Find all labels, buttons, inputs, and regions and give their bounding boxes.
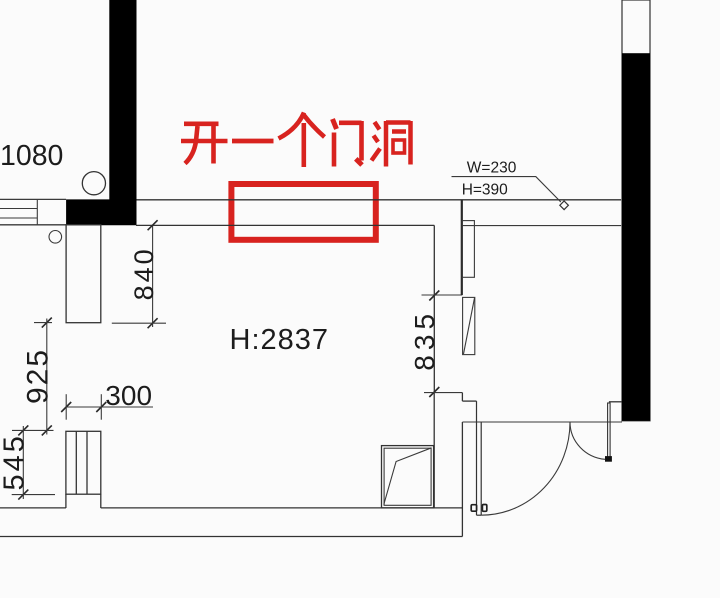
svg-text:545: 545 bbox=[0, 433, 30, 490]
svg-text:835: 835 bbox=[409, 309, 440, 371]
svg-text:H=390: H=390 bbox=[462, 182, 508, 199]
svg-text:W=230: W=230 bbox=[467, 160, 517, 177]
svg-text:840: 840 bbox=[129, 246, 159, 300]
svg-text:300: 300 bbox=[105, 380, 152, 411]
svg-text:H:2837: H:2837 bbox=[230, 324, 330, 356]
svg-text:1080: 1080 bbox=[0, 140, 63, 172]
svg-text:925: 925 bbox=[21, 348, 54, 404]
